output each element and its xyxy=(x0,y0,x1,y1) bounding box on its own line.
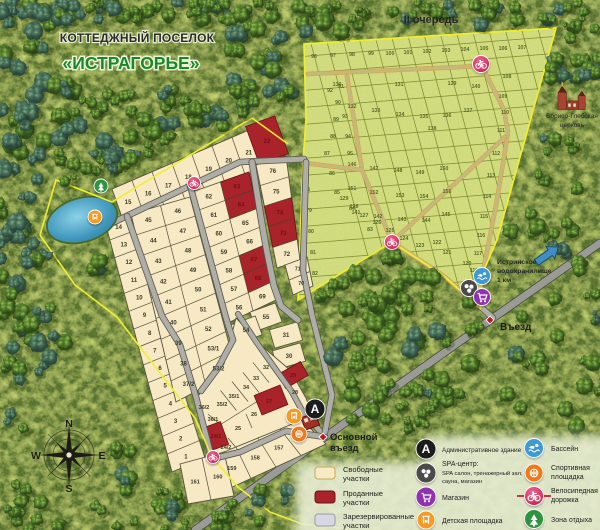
svg-text:116: 116 xyxy=(477,233,485,239)
svg-text:104: 104 xyxy=(461,47,470,53)
svg-text:114: 114 xyxy=(483,194,491,200)
svg-text:SPA салон, тренажерный зал,: SPA салон, тренажерный зал, xyxy=(442,470,523,477)
svg-text:143: 143 xyxy=(398,217,407,223)
svg-text:99: 99 xyxy=(368,51,374,57)
svg-text:89: 89 xyxy=(333,117,339,123)
svg-text:84: 84 xyxy=(349,206,355,212)
svg-text:дорожка: дорожка xyxy=(551,497,579,504)
svg-text:44: 44 xyxy=(150,239,157,245)
svg-text:48: 48 xyxy=(185,248,192,254)
svg-text:67: 67 xyxy=(251,258,258,264)
svg-text:155: 155 xyxy=(443,189,452,195)
svg-text:17: 17 xyxy=(165,184,172,190)
svg-text:50: 50 xyxy=(195,288,202,294)
svg-text:68: 68 xyxy=(255,276,262,282)
svg-text:54: 54 xyxy=(243,328,250,334)
svg-text:38: 38 xyxy=(180,361,187,367)
svg-text:57: 57 xyxy=(231,287,238,293)
svg-text:125: 125 xyxy=(386,228,395,234)
svg-text:135: 135 xyxy=(420,114,429,120)
svg-text:133: 133 xyxy=(372,108,381,114)
svg-text:63: 63 xyxy=(234,184,241,190)
svg-text:13: 13 xyxy=(120,243,127,249)
svg-text:66: 66 xyxy=(246,239,253,245)
svg-text:147: 147 xyxy=(370,166,379,172)
svg-text:105: 105 xyxy=(480,46,489,52)
svg-text:51: 51 xyxy=(200,307,207,313)
svg-text:117: 117 xyxy=(474,251,482,257)
svg-text:Зарезервированные: Зарезервированные xyxy=(343,512,414,521)
svg-text:28: 28 xyxy=(292,390,298,396)
svg-text:Зона отдыха: Зона отдыха xyxy=(551,517,592,524)
svg-text:85: 85 xyxy=(334,190,340,196)
svg-text:37/2: 37/2 xyxy=(183,382,195,388)
svg-text:69: 69 xyxy=(259,294,266,300)
svg-text:146: 146 xyxy=(348,162,357,168)
svg-text:137: 137 xyxy=(464,108,473,114)
svg-text:87: 87 xyxy=(324,151,330,157)
svg-text:139: 139 xyxy=(448,81,457,87)
svg-text:76: 76 xyxy=(269,169,276,175)
svg-text:71: 71 xyxy=(295,267,301,273)
svg-text:Велосипедная: Велосипедная xyxy=(551,488,598,495)
svg-text:Детская площадка: Детская площадка xyxy=(442,518,503,525)
svg-text:49: 49 xyxy=(190,268,197,274)
svg-text:53/1: 53/1 xyxy=(208,347,220,353)
svg-text:33: 33 xyxy=(253,376,259,382)
svg-text:16: 16 xyxy=(145,192,152,198)
svg-text:53/2: 53/2 xyxy=(213,366,225,372)
svg-text:73: 73 xyxy=(280,231,287,237)
svg-text:72: 72 xyxy=(283,252,290,258)
svg-text:122: 122 xyxy=(433,240,442,246)
svg-text:12: 12 xyxy=(126,260,133,266)
svg-text:42: 42 xyxy=(160,280,167,286)
svg-text:93: 93 xyxy=(342,114,348,120)
svg-text:112: 112 xyxy=(492,151,500,157)
svg-text:30: 30 xyxy=(286,354,293,360)
svg-text:E: E xyxy=(98,450,105,462)
svg-text:81: 81 xyxy=(310,250,316,256)
svg-text:145: 145 xyxy=(442,212,451,218)
svg-text:45: 45 xyxy=(145,218,152,224)
svg-text:Борисо-Глебская: Борисо-Глебская xyxy=(546,112,598,120)
svg-text:47: 47 xyxy=(180,229,187,235)
svg-text:100: 100 xyxy=(386,51,395,57)
svg-text:60: 60 xyxy=(215,231,222,237)
svg-text:80: 80 xyxy=(308,229,314,235)
svg-text:149: 149 xyxy=(416,170,425,176)
svg-text:1 км: 1 км xyxy=(497,277,511,284)
svg-text:153: 153 xyxy=(396,193,405,199)
svg-text:Административное здание: Административное здание xyxy=(442,447,522,454)
svg-text:86: 86 xyxy=(329,171,335,177)
svg-text:58: 58 xyxy=(226,268,233,274)
svg-text:Въезд: Въезд xyxy=(500,322,532,333)
svg-text:113: 113 xyxy=(487,173,495,179)
svg-text:24/1: 24/1 xyxy=(211,434,222,440)
svg-text:Спортивная: Спортивная xyxy=(551,465,590,472)
svg-text:96: 96 xyxy=(311,54,317,60)
svg-text:27: 27 xyxy=(266,399,272,405)
svg-text:121: 121 xyxy=(443,250,452,256)
svg-text:Бассейн: Бассейн xyxy=(551,445,578,453)
svg-text:29: 29 xyxy=(290,373,296,379)
svg-text:10: 10 xyxy=(136,296,143,302)
svg-text:Магазин: Магазин xyxy=(442,495,469,502)
svg-text:132: 132 xyxy=(348,104,357,110)
svg-text:91: 91 xyxy=(338,84,344,90)
svg-text:участки: участки xyxy=(343,498,369,507)
svg-text:126: 126 xyxy=(373,220,382,226)
svg-text:II очередь: II очередь xyxy=(404,14,459,26)
svg-text:19: 19 xyxy=(205,167,212,173)
svg-text:52: 52 xyxy=(205,327,212,333)
svg-text:25: 25 xyxy=(235,426,241,432)
svg-text:102: 102 xyxy=(423,49,432,55)
svg-text:70: 70 xyxy=(298,281,304,287)
svg-text:участки: участки xyxy=(343,521,369,530)
svg-text:92: 92 xyxy=(327,88,333,94)
svg-text:церковь: церковь xyxy=(560,122,585,129)
svg-text:59: 59 xyxy=(221,250,228,256)
svg-text:64: 64 xyxy=(238,203,245,209)
svg-text:водохранилище: водохранилище xyxy=(497,268,552,275)
svg-text:123: 123 xyxy=(416,243,425,249)
svg-text:SPA-центр:: SPA-центр: xyxy=(442,461,479,468)
svg-text:Свободные: Свободные xyxy=(343,465,383,474)
svg-text:14: 14 xyxy=(115,225,122,231)
svg-text:90: 90 xyxy=(335,100,341,106)
svg-text:А: А xyxy=(311,402,320,416)
svg-text:32: 32 xyxy=(263,365,269,371)
svg-text:140: 140 xyxy=(472,84,481,90)
svg-text:Основной: Основной xyxy=(330,432,378,443)
svg-text:«ИСТРАГОРЬЕ»: «ИСТРАГОРЬЕ» xyxy=(63,53,200,73)
svg-text:41: 41 xyxy=(165,300,172,306)
svg-text:сауна, магазин: сауна, магазин xyxy=(442,479,482,485)
svg-text:КОТТЕДЖНЫЙ ПОСЕЛОК: КОТТЕДЖНЫЙ ПОСЕЛОК xyxy=(60,30,215,45)
svg-text:154: 154 xyxy=(420,194,429,200)
svg-text:109: 109 xyxy=(499,94,508,100)
svg-text:39: 39 xyxy=(175,341,182,347)
svg-text:98: 98 xyxy=(349,52,355,58)
svg-text:151: 151 xyxy=(348,186,357,192)
svg-text:21: 21 xyxy=(245,151,252,157)
svg-text:111: 111 xyxy=(497,128,505,134)
svg-text:115: 115 xyxy=(480,214,488,220)
svg-text:127: 127 xyxy=(360,213,369,219)
svg-text:26: 26 xyxy=(251,412,257,418)
svg-text:А: А xyxy=(422,442,431,456)
svg-text:138: 138 xyxy=(428,126,437,132)
svg-text:107: 107 xyxy=(518,45,527,51)
svg-text:участки: участки xyxy=(343,474,369,483)
svg-text:43: 43 xyxy=(155,259,162,265)
svg-text:площадка: площадка xyxy=(551,474,584,481)
svg-text:31: 31 xyxy=(283,333,290,339)
svg-text:157: 157 xyxy=(274,446,283,452)
svg-text:въезд: въезд xyxy=(330,443,359,454)
svg-text:62: 62 xyxy=(205,194,212,200)
svg-text:158: 158 xyxy=(251,456,260,462)
svg-text:82: 82 xyxy=(312,271,318,277)
svg-text:83: 83 xyxy=(367,227,373,233)
svg-text:106: 106 xyxy=(499,46,508,52)
svg-text:22: 22 xyxy=(264,139,271,145)
svg-text:136: 136 xyxy=(443,113,452,119)
svg-text:120: 120 xyxy=(463,261,472,267)
svg-text:36/2: 36/2 xyxy=(199,405,210,411)
svg-text:34: 34 xyxy=(243,385,250,391)
svg-text:144: 144 xyxy=(422,218,431,224)
svg-text:Проданные: Проданные xyxy=(343,489,383,498)
svg-text:11: 11 xyxy=(131,278,138,284)
svg-text:152: 152 xyxy=(370,190,379,196)
svg-text:95: 95 xyxy=(347,151,353,157)
svg-text:101: 101 xyxy=(404,50,413,56)
svg-text:61: 61 xyxy=(210,213,217,219)
svg-text:20: 20 xyxy=(225,159,232,165)
svg-text:40: 40 xyxy=(170,320,177,326)
svg-text:88: 88 xyxy=(330,134,336,140)
svg-text:148: 148 xyxy=(394,168,403,174)
svg-text:65: 65 xyxy=(242,221,249,227)
svg-text:35/2: 35/2 xyxy=(217,402,228,408)
svg-text:Истринское: Истринское xyxy=(497,259,537,266)
svg-text:103: 103 xyxy=(442,48,451,54)
svg-text:134: 134 xyxy=(396,112,405,118)
svg-text:35/1: 35/1 xyxy=(229,394,240,400)
svg-text:S: S xyxy=(65,483,72,495)
svg-text:129: 129 xyxy=(340,196,349,202)
svg-text:36/1: 36/1 xyxy=(208,417,219,423)
svg-text:97: 97 xyxy=(330,53,336,59)
svg-text:W: W xyxy=(31,450,41,462)
svg-text:N: N xyxy=(65,418,73,430)
svg-text:159: 159 xyxy=(227,466,236,472)
svg-text:75: 75 xyxy=(273,190,280,196)
svg-text:108: 108 xyxy=(503,74,512,80)
svg-text:150: 150 xyxy=(440,166,449,172)
svg-text:161: 161 xyxy=(191,480,200,486)
svg-text:55: 55 xyxy=(263,315,270,321)
svg-text:110: 110 xyxy=(501,110,509,116)
svg-text:24/2: 24/2 xyxy=(221,445,232,451)
svg-text:74: 74 xyxy=(276,210,283,216)
svg-text:131: 131 xyxy=(395,82,404,88)
svg-text:94: 94 xyxy=(345,134,351,140)
svg-text:46: 46 xyxy=(174,209,181,215)
svg-text:56: 56 xyxy=(236,305,243,311)
svg-text:160: 160 xyxy=(213,475,222,481)
svg-text:15: 15 xyxy=(125,200,132,206)
